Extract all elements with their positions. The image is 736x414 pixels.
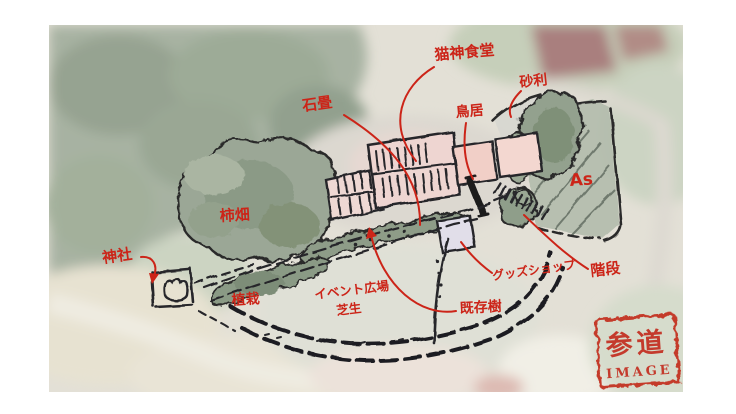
label-lawn: 芝生 [336, 300, 363, 318]
label-gravel: 砂利 [518, 71, 549, 91]
label-asphalt: As [569, 169, 594, 191]
label-persimmon-orchard: 柿畑 [219, 205, 250, 225]
label-existing-tree: 既存樹 [459, 298, 502, 317]
label-planting: 植栽 [230, 290, 260, 309]
annotated-site-map: 猫神食堂 砂利 石畳 鳥居 As 柿畑 神社 植栽 イベント広場 芝生 グッズシ… [49, 25, 683, 392]
stamp-title: 参道 [604, 326, 668, 362]
map-svg: 猫神食堂 砂利 石畳 鳥居 As 柿畑 神社 植栽 イベント広場 芝生 グッズシ… [49, 25, 683, 392]
label-torii: 鳥居 [455, 102, 484, 121]
label-stairs: 階段 [590, 259, 622, 280]
page: { "labels": { "restaurant": "猫神食堂", "gra… [0, 0, 736, 414]
